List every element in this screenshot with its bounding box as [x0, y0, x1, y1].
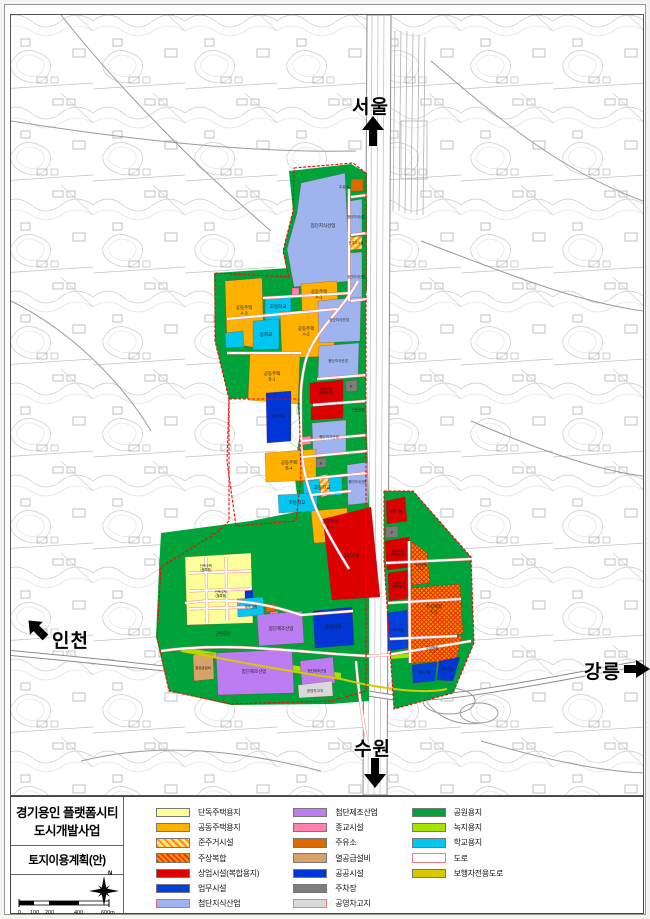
map-area: 첨단지식산업주유소첨단지식산업준주거시설첨단지식산업공동주택A-1초등학교공동주… [10, 14, 644, 796]
zone-label: 첨단제조산업 [242, 668, 267, 675]
zone-label: P [350, 384, 353, 389]
legend-swatch-commercial [156, 869, 190, 879]
arrow-right-icon [624, 658, 650, 680]
legend-item: 학교용지 [412, 837, 503, 848]
legend-item: 녹지용지 [412, 822, 503, 833]
legend-item: 공공시설 [293, 868, 377, 879]
zone-label: 단독주택(블록형) [215, 589, 227, 598]
legend-item: 공원용지 [412, 807, 503, 818]
zone-label: 첨단지식산업 [319, 434, 339, 439]
land-use-plan-page: 첨단지식산업주유소첨단지식산업준주거시설첨단지식산업공동주택A-1초등학교공동주… [0, 0, 650, 919]
legend-swatch-mixed_use [156, 853, 190, 863]
legend-column: 공원용지녹지용지학교용지도로보행자전용도로 [412, 807, 503, 913]
legend-column: 단독주택용지공동주택용지준주거시설주상복합상업시설(복합용지)업무시설첨단지식산… [156, 807, 259, 913]
legend-item: 주유소 [293, 837, 377, 848]
zone-label: 공영차고지 [307, 688, 324, 693]
legend-swatch-depot [293, 899, 327, 909]
zone-religion [292, 288, 299, 295]
zone-label: 근린공원 [351, 407, 364, 412]
legend-label: 공원용지 [454, 807, 482, 818]
zone-label: 공공시설 [441, 666, 453, 671]
legend-panel: 경기용인 플랫폼시티 도시개발사업 토지이용계획(안) 0 100 [10, 796, 644, 914]
zone-label: 근린공원 [215, 630, 231, 636]
project-title-line2: 도시개발사업 [13, 822, 121, 840]
scale-tick-0: 0 [18, 910, 21, 916]
zone-label: 첨단지식산업 [311, 222, 336, 229]
legend-swatch-manufacture [293, 808, 327, 818]
zone-label: 준주거시설 [349, 240, 364, 245]
zone-label: 첨단지식산업 [328, 358, 348, 363]
zone-label: 첨단지식산업 [347, 214, 365, 219]
legend-label: 첨단제조산업 [335, 807, 377, 818]
legend-item: 상업시설(복합용지) [156, 868, 259, 879]
legend-swatch-heat [293, 853, 327, 863]
legend-column: 첨단제조산업종교시설주유소열공급설비공공시설주차장공영차고지 [293, 807, 377, 913]
legend-item: 업무시설 [156, 883, 259, 894]
scale-and-compass: 0 100 200 400 600m N [11, 875, 123, 919]
zone-label: 첨단지식산업 [329, 317, 349, 322]
site-road [409, 541, 410, 663]
zone-label: 중학교 [260, 331, 272, 338]
zone-label: 첨단제조산업 [308, 668, 327, 673]
legend-label: 도로 [454, 853, 468, 864]
legend-item: 공영차고지 [293, 898, 377, 909]
legend-item: 준주거시설 [156, 837, 259, 848]
zone-label: 공공시설 [325, 623, 342, 629]
zone-label: 상업시설 [343, 552, 360, 558]
legend-label: 공공시설 [335, 868, 363, 879]
legend-swatch-knowledge [156, 899, 190, 909]
legend-item: 종교시설 [293, 822, 377, 833]
zone-label: 상업시설(복합용지) [319, 386, 334, 395]
zone-label: 첨단지식산업 [348, 479, 366, 484]
zone-label: 체육공원 [245, 604, 257, 609]
legend-item: 도로 [412, 853, 503, 864]
zone-label: 업무시설 [418, 669, 430, 674]
compass-north-label: N [108, 871, 112, 877]
zone-label: P [320, 461, 323, 466]
legend-swatch-greenery [412, 823, 446, 833]
legend-label: 업무시설 [198, 883, 226, 894]
zone-commercial [311, 404, 343, 420]
legend-label: 공영차고지 [335, 898, 370, 909]
site-road [226, 557, 227, 621]
legend-swatch-pedestrian [412, 869, 446, 879]
legend-label: 첨단지식산업 [198, 898, 240, 909]
legend-swatch-park [412, 808, 446, 818]
direction-label-gangneung: 강릉 [584, 657, 621, 684]
legend-label: 열공급설비 [335, 853, 370, 864]
legend-item: 단독주택용지 [156, 807, 259, 818]
zone-gas [351, 179, 363, 191]
legend-item: 공동주택용지 [156, 822, 259, 833]
zone-label: 상업시설 [390, 508, 402, 513]
legend-label: 학교용지 [454, 837, 482, 848]
zone-label: 초등학교 [270, 303, 287, 310]
zone-label: 단독주택(블록형) [200, 563, 212, 572]
legend-swatch-religion [293, 823, 327, 833]
scale-tick-600: 600m [101, 910, 115, 916]
legend-item: 첨단지식산업 [156, 898, 259, 909]
legend-columns: 단독주택용지공동주택용지준주거시설주상복합상업시설(복합용지)업무시설첨단지식산… [124, 797, 643, 913]
arrow-up-icon [360, 116, 386, 146]
legend-item: 보행자전용도로 [412, 868, 503, 879]
compass-icon: N [87, 869, 121, 909]
legend-swatch-parking [293, 884, 327, 894]
zone-label: 주유소 [339, 184, 350, 189]
zone-label: 상업시설(복합용지) [391, 548, 406, 557]
zone-label: 첨단제조산업 [269, 625, 294, 632]
legend-label: 종교시설 [335, 822, 363, 833]
legend-swatch-gas [293, 838, 327, 848]
legend-label: 주차장 [335, 883, 356, 894]
direction-label-suwon: 수원 [354, 734, 391, 761]
legend-swatch-apartment [156, 823, 190, 833]
legend-label: 보행자전용도로 [454, 868, 503, 879]
zone-label: 열공급설비 [195, 665, 211, 670]
arrow-up-left-icon [24, 616, 50, 642]
zone-label: 공공시설 [271, 413, 284, 418]
legend-label: 공동주택용지 [198, 822, 240, 833]
arrow-down-icon [362, 758, 388, 788]
zone-label: 초등학교 [289, 499, 306, 506]
zone-label: 고등학교 [314, 484, 331, 491]
zone-label: 첨단지식산업 [347, 274, 365, 279]
legend-label: 단독주택용지 [198, 807, 240, 818]
legend-item: 주상복합 [156, 853, 259, 864]
legend-swatch-business [156, 884, 190, 894]
scale-tick-200: 200 [45, 910, 54, 916]
legend-swatch-public [293, 869, 327, 879]
legend-label: 상업시설(복합용지) [198, 868, 259, 879]
direction-label-seoul: 서울 [352, 92, 389, 119]
zone-school [225, 331, 244, 348]
legend-swatch-semi_res [156, 838, 190, 848]
zone-label: P [391, 530, 394, 535]
direction-label-incheon: 인천 [52, 626, 89, 653]
legend-label: 녹지용지 [454, 822, 482, 833]
title-block: 경기용인 플랫폼시티 도시개발사업 토지이용계획(안) 0 100 [11, 797, 124, 913]
project-title-line1: 경기용인 플랫폼시티 [13, 804, 121, 822]
scale-tick-400: 400 [74, 910, 83, 916]
legend-label: 준주거시설 [198, 837, 233, 848]
legend-label: 주유소 [335, 837, 356, 848]
zone-label: 상업시설(복합용지) [392, 580, 407, 589]
scale-tick-100: 100 [30, 910, 39, 916]
zone-label: 업무시설 [390, 627, 403, 632]
legend-item: 열공급설비 [293, 853, 377, 864]
legend-swatch-road [412, 853, 446, 863]
land-use-map: 첨단지식산업주유소첨단지식산업준주거시설첨단지식산업공동주택A-1초등학교공동주… [11, 15, 643, 795]
legend-item: 주차장 [293, 883, 377, 894]
legend-swatch-school [412, 838, 446, 848]
legend-label: 주상복합 [198, 853, 226, 864]
legend-swatch-detached [156, 808, 190, 818]
project-title: 경기용인 플랫폼시티 도시개발사업 [11, 797, 123, 846]
legend-item: 첨단제조산업 [293, 807, 377, 818]
